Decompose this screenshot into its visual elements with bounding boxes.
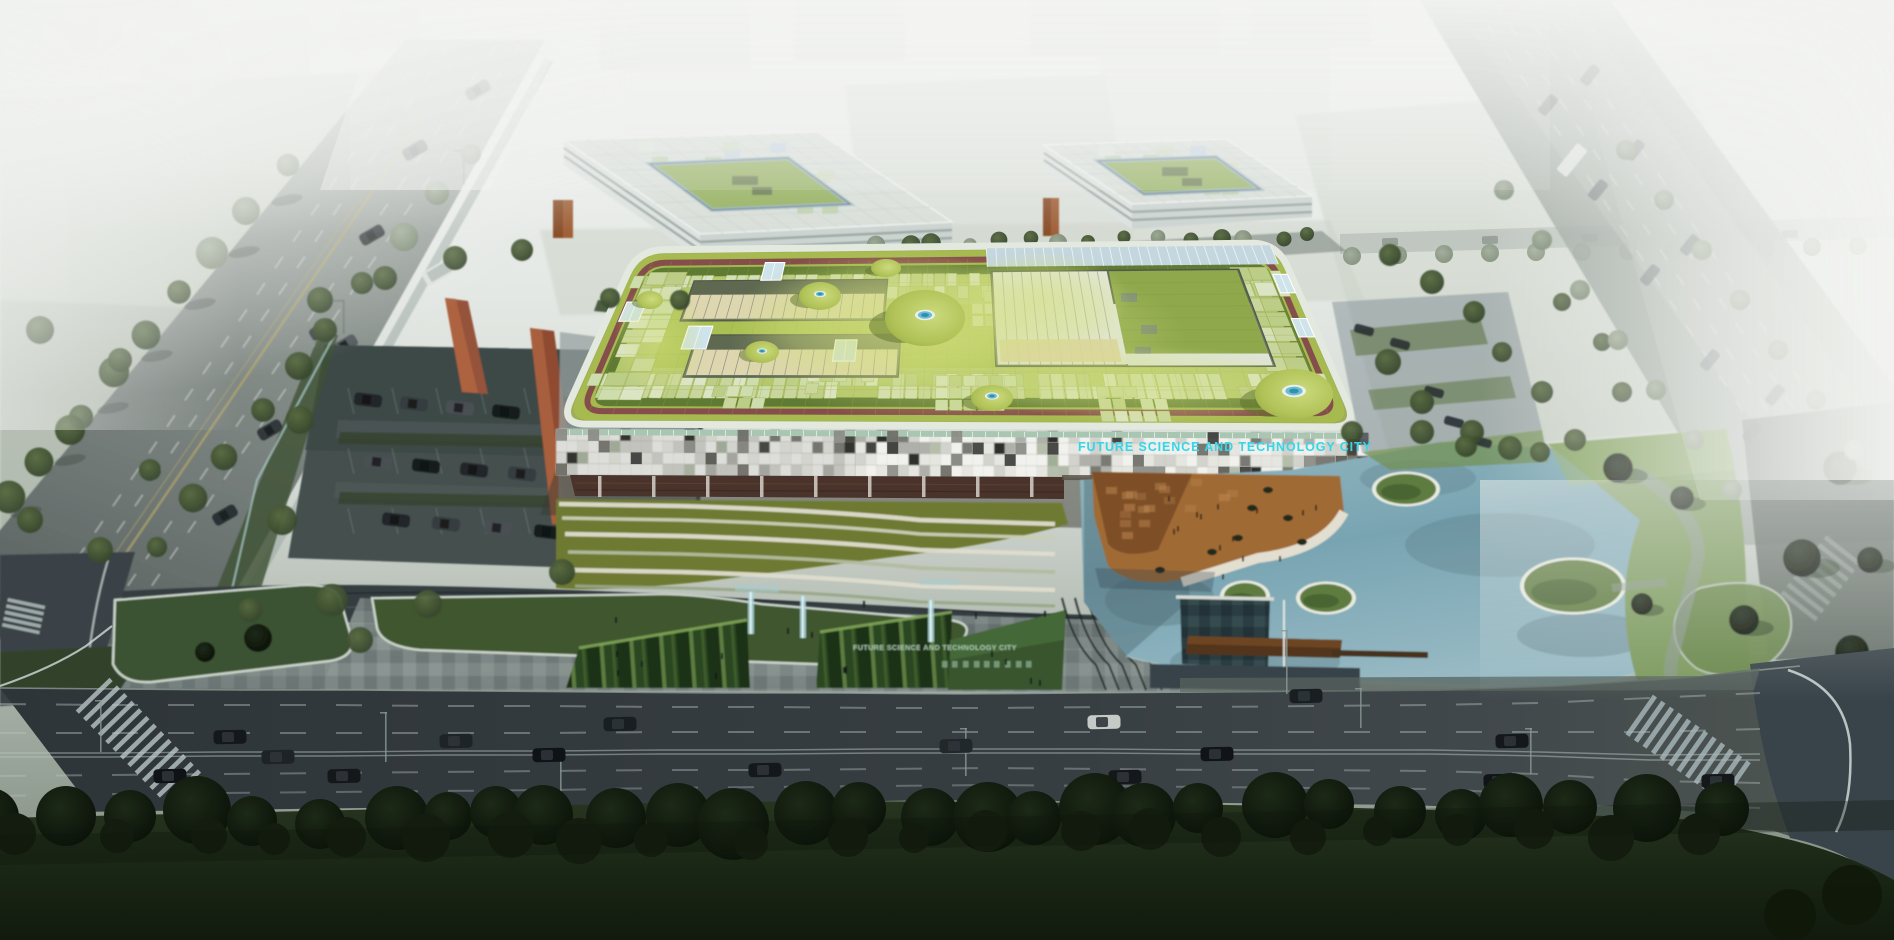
svg-text:FUTURE SCIENCE AND TECHNOLOGY: FUTURE SCIENCE AND TECHNOLOGY CITY bbox=[1078, 440, 1372, 454]
svg-text:FUTURE SCIENCE AND TECHNOLOGY: FUTURE SCIENCE AND TECHNOLOGY CITY bbox=[853, 643, 1017, 652]
